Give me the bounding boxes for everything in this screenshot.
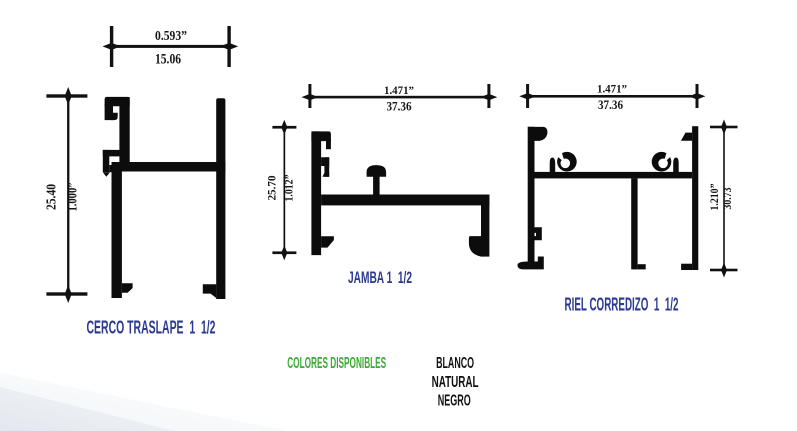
svg-text:1.210”: 1.210” bbox=[709, 183, 721, 210]
svg-text:30.73: 30.73 bbox=[722, 187, 734, 209]
svg-text:JAMBA 1 1/2: JAMBA 1 1/2 bbox=[348, 268, 412, 287]
svg-text:NEGRO: NEGRO bbox=[438, 393, 471, 410]
svg-text:NATURAL: NATURAL bbox=[432, 374, 479, 391]
svg-text:BLANCO: BLANCO bbox=[436, 355, 474, 372]
svg-text:0.593”: 0.593” bbox=[155, 28, 187, 43]
svg-text:COLORES DISPONIBLES: COLORES DISPONIBLES bbox=[287, 355, 386, 372]
svg-text:25.70: 25.70 bbox=[264, 176, 278, 201]
svg-text:1.012”: 1.012” bbox=[281, 175, 295, 202]
svg-text:15.06: 15.06 bbox=[155, 52, 181, 68]
svg-text:25.40: 25.40 bbox=[44, 184, 59, 210]
svg-text:RIEL CORREDIZO 1 1/2: RIEL CORREDIZO 1 1/2 bbox=[565, 294, 679, 315]
svg-text:CERCO TRASLAPE 1 1/2: CERCO TRASLAPE 1 1/2 bbox=[87, 317, 216, 338]
svg-text:1.471”: 1.471” bbox=[384, 83, 414, 97]
svg-text:37.36: 37.36 bbox=[598, 98, 623, 112]
svg-text:1.000”: 1.000” bbox=[65, 182, 80, 211]
svg-text:37.36: 37.36 bbox=[387, 100, 412, 114]
svg-text:1.471”: 1.471” bbox=[597, 82, 627, 96]
